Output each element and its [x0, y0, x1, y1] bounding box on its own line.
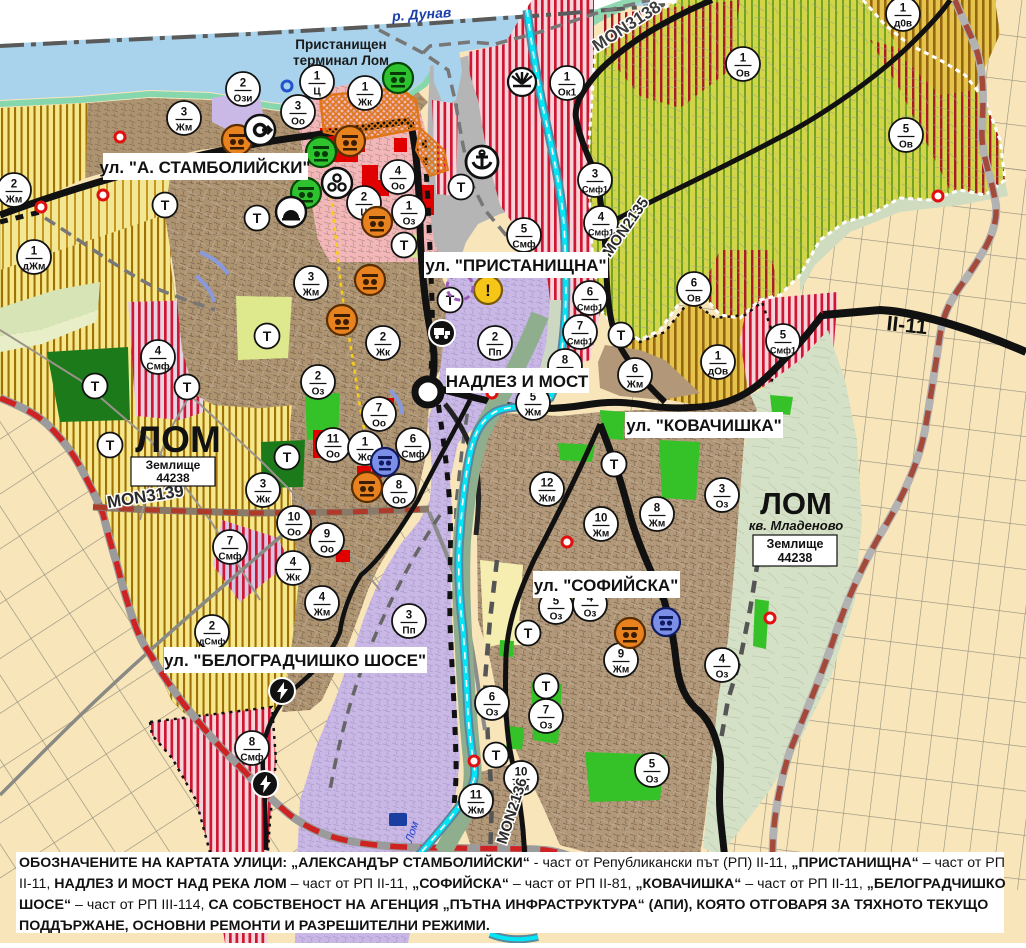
svg-text:Оо: Оо — [291, 117, 305, 128]
svg-text:6: 6 — [691, 278, 697, 290]
svg-text:Оо: Оо — [326, 450, 340, 461]
svg-text:1: 1 — [406, 201, 413, 213]
svg-text:1: 1 — [31, 246, 38, 258]
svg-text:2: 2 — [315, 371, 321, 383]
svg-text:НАДЛЕЗ И МОСТ: НАДЛЕЗ И МОСТ — [446, 372, 589, 391]
svg-text:4: 4 — [155, 346, 162, 358]
svg-text:ЛОМ: ЛОМ — [135, 419, 221, 460]
svg-text:8: 8 — [396, 480, 403, 492]
svg-text:Смф: Смф — [218, 551, 241, 563]
svg-text:Жк: Жк — [375, 348, 391, 359]
svg-text:2: 2 — [11, 179, 17, 191]
svg-text:9: 9 — [618, 649, 624, 661]
svg-text:терминал Лом: терминал Лом — [293, 53, 389, 68]
svg-text:5: 5 — [903, 124, 910, 136]
svg-text:7: 7 — [577, 321, 583, 333]
svg-text:!: ! — [485, 281, 491, 300]
svg-text:1: 1 — [314, 71, 321, 83]
svg-text:3: 3 — [181, 107, 187, 119]
svg-text:4: 4 — [290, 557, 297, 569]
svg-text:Оз: Оз — [486, 708, 499, 719]
svg-text:ул. "СОФИЙСКА": ул. "СОФИЙСКА" — [534, 576, 679, 595]
svg-text:Смф1: Смф1 — [770, 346, 796, 356]
svg-text:Жк: Жк — [255, 495, 271, 506]
svg-text:3: 3 — [406, 610, 412, 622]
svg-text:Жм: Жм — [626, 380, 643, 391]
svg-text:3: 3 — [592, 169, 598, 181]
svg-text:Жм: Жм — [524, 408, 541, 419]
svg-text:Жм: Жм — [467, 806, 484, 817]
svg-text:Пп: Пп — [402, 626, 415, 637]
svg-text:7: 7 — [543, 705, 549, 717]
svg-text:Оо: Оо — [320, 545, 334, 556]
svg-text:Т: Т — [400, 237, 409, 253]
svg-text:1: 1 — [740, 53, 747, 65]
svg-text:Смф: Смф — [146, 361, 169, 373]
svg-text:5: 5 — [780, 330, 787, 342]
svg-text:Ов: Ов — [687, 294, 701, 305]
svg-text:5: 5 — [530, 392, 537, 404]
svg-text:10: 10 — [288, 512, 301, 524]
svg-text:4: 4 — [719, 654, 726, 666]
svg-text:Жк: Жк — [357, 98, 373, 109]
svg-text:1: 1 — [564, 72, 571, 84]
svg-text:Смф: Смф — [512, 239, 535, 251]
svg-text:Оз: Оз — [550, 612, 563, 623]
svg-text:II-11, НАДЛЕЗ И МОСТ НАД РЕКА: II-11, НАДЛЕЗ И МОСТ НАД РЕКА ЛОМ – част… — [19, 874, 1006, 892]
svg-text:Пристанищен: Пристанищен — [295, 37, 386, 52]
svg-text:ОБОЗНАЧЕНИТЕ НА КАРТАТА УЛИЦИ:: ОБОЗНАЧЕНИТЕ НА КАРТАТА УЛИЦИ: „АЛЕКСАНД… — [19, 853, 1005, 871]
svg-text:Землище: Землище — [767, 537, 824, 551]
svg-text:Т: Т — [542, 678, 551, 694]
svg-text:6: 6 — [410, 434, 416, 446]
svg-text:Т: Т — [106, 437, 115, 453]
svg-text:Оз: Оз — [584, 609, 597, 620]
svg-text:Жм: Жм — [592, 529, 609, 540]
svg-text:10: 10 — [595, 513, 608, 525]
svg-text:4: 4 — [319, 592, 326, 604]
svg-text:6: 6 — [632, 364, 638, 376]
svg-text:Оз: Оз — [716, 500, 729, 511]
svg-text:3: 3 — [308, 272, 314, 284]
svg-text:6: 6 — [587, 287, 593, 299]
svg-text:Оо: Оо — [391, 182, 405, 193]
svg-text:44238: 44238 — [778, 551, 813, 565]
svg-text:9: 9 — [324, 529, 330, 541]
svg-text:6: 6 — [489, 692, 495, 704]
svg-text:д0в: д0в — [894, 19, 912, 30]
svg-text:II-11: II-11 — [885, 312, 928, 339]
svg-text:Оо: Оо — [372, 419, 386, 430]
svg-text:кв. Младеново: кв. Младеново — [749, 518, 843, 533]
svg-text:Ц: Ц — [313, 87, 321, 98]
svg-text:Пп: Пп — [488, 348, 501, 359]
svg-text:Землище: Землище — [146, 458, 201, 472]
svg-text:Ов: Ов — [736, 69, 750, 80]
svg-text:Жм: Жм — [175, 123, 192, 134]
svg-text:4: 4 — [598, 212, 605, 224]
svg-text:2: 2 — [361, 192, 367, 204]
svg-text:Жм: Жм — [648, 519, 665, 530]
svg-text:Жм: Жм — [538, 494, 555, 505]
svg-text:Оз: Оз — [403, 217, 416, 228]
svg-text:Т: Т — [183, 379, 192, 395]
svg-text:1: 1 — [715, 351, 722, 363]
svg-text:Оз: Оз — [716, 670, 729, 681]
svg-text:11: 11 — [470, 790, 483, 802]
svg-text:44238: 44238 — [156, 471, 190, 485]
svg-text:Ози: Ози — [234, 94, 253, 105]
svg-text:8: 8 — [562, 355, 569, 367]
svg-text:Т: Т — [610, 456, 619, 472]
svg-text:ЛОМ: ЛОМ — [760, 486, 832, 521]
svg-text:3: 3 — [295, 101, 301, 113]
svg-text:Т: Т — [617, 327, 626, 343]
svg-text:Ок1: Ок1 — [558, 88, 577, 99]
svg-text:3: 3 — [719, 484, 725, 496]
svg-text:7: 7 — [376, 403, 382, 415]
svg-text:Оо: Оо — [287, 528, 301, 539]
svg-text:Жм: Жм — [5, 195, 22, 206]
svg-text:ул. "А. СТАМБОЛИЙСКИ": ул. "А. СТАМБОЛИЙСКИ" — [99, 158, 310, 177]
svg-text:Т: Т — [253, 210, 262, 226]
svg-text:1: 1 — [900, 3, 907, 15]
svg-text:дОв: дОв — [708, 367, 728, 378]
svg-text:ПОДДЪРЖАНЕ, ОСНОВНИ РЕМОНТИ И: ПОДДЪРЖАНЕ, ОСНОВНИ РЕМОНТИ И РАЗРЕШИТЕЛ… — [19, 918, 490, 934]
svg-text:Жм: Жм — [313, 608, 330, 619]
svg-text:7: 7 — [227, 536, 233, 548]
svg-text:Смф: Смф — [401, 449, 424, 461]
svg-text:Жм: Жм — [612, 665, 629, 676]
svg-text:Жм: Жм — [302, 288, 319, 299]
svg-text:Ов: Ов — [899, 140, 913, 151]
svg-text:12: 12 — [541, 478, 554, 490]
svg-text:Т: Т — [263, 328, 272, 344]
svg-text:Т: Т — [91, 378, 100, 394]
svg-text:Смф1: Смф1 — [582, 185, 608, 195]
svg-text:Т: Т — [524, 625, 533, 641]
svg-text:1: 1 — [362, 437, 369, 449]
svg-text:3: 3 — [260, 479, 266, 491]
svg-text:Смф1: Смф1 — [577, 303, 603, 313]
svg-text:Оо: Оо — [392, 496, 406, 507]
svg-text:ул. "БЕЛОГРАДЧИШКО ШОСЕ": ул. "БЕЛОГРАДЧИШКО ШОСЕ" — [164, 651, 426, 670]
svg-text:2: 2 — [380, 332, 386, 344]
svg-text:дЖм: дЖм — [23, 262, 46, 273]
svg-text:Т: Т — [161, 197, 170, 213]
svg-text:Смф1: Смф1 — [567, 337, 593, 347]
svg-text:11: 11 — [327, 434, 340, 446]
svg-text:2: 2 — [240, 78, 246, 90]
svg-text:8: 8 — [249, 737, 256, 749]
svg-text:8: 8 — [654, 503, 661, 515]
svg-text:Жк: Жк — [285, 573, 301, 584]
svg-text:Оз: Оз — [646, 775, 659, 786]
svg-text:ШОСЕ“ – част от РП III-114, СА: ШОСЕ“ – част от РП III-114, СА СОБСТВЕНО… — [19, 897, 988, 913]
svg-text:Т: Т — [492, 747, 501, 763]
svg-text:ул. "КОВАЧИШКА": ул. "КОВАЧИШКА" — [626, 416, 782, 435]
svg-text:дСмф: дСмф — [199, 637, 226, 647]
svg-text:5: 5 — [649, 759, 656, 771]
svg-text:Т: Т — [283, 449, 292, 465]
svg-text:5: 5 — [521, 224, 528, 236]
svg-text:2: 2 — [209, 621, 215, 633]
svg-text:1: 1 — [362, 82, 369, 94]
svg-text:4: 4 — [395, 166, 402, 178]
svg-text:Т: Т — [457, 179, 466, 195]
svg-text:ул. "ПРИСТАНИЩНА": ул. "ПРИСТАНИЩНА" — [425, 256, 606, 275]
svg-text:Оз: Оз — [540, 721, 553, 732]
svg-text:2: 2 — [492, 332, 498, 344]
svg-text:Смф: Смф — [240, 752, 263, 764]
svg-text:Оз: Оз — [312, 387, 325, 398]
